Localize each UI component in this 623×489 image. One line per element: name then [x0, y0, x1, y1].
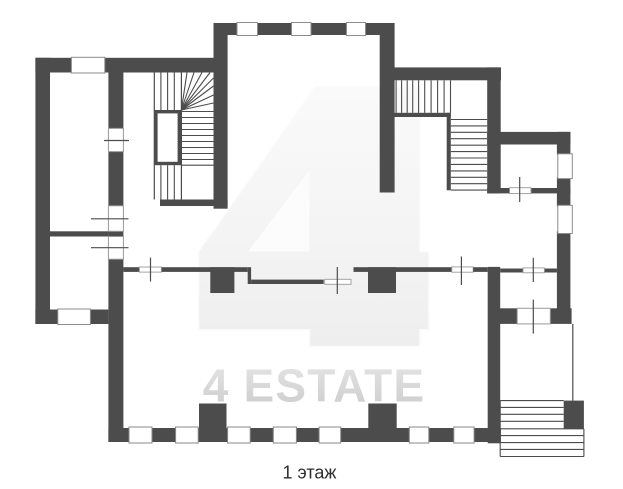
svg-text:1 этаж: 1 этаж	[283, 463, 337, 483]
